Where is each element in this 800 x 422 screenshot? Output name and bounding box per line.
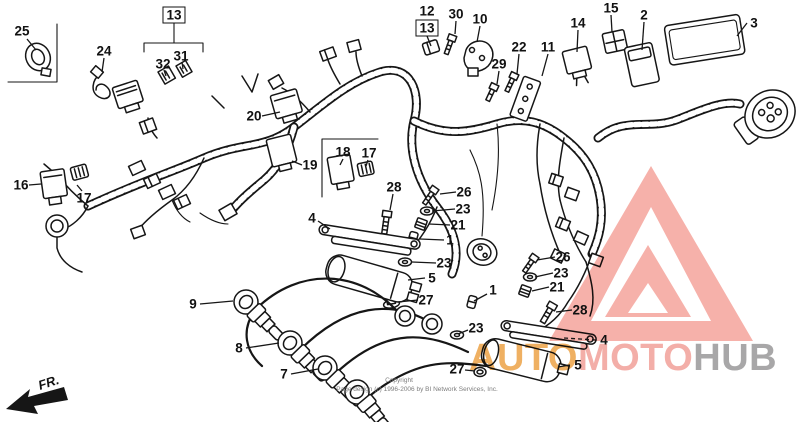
part-label-11: 11 — [541, 40, 555, 55]
part-label-18: 18 — [335, 145, 350, 160]
part-label-23: 23 — [436, 256, 451, 271]
part-label-25: 25 — [14, 24, 29, 39]
part-label-30: 30 — [448, 7, 463, 22]
part-label-28: 28 — [572, 303, 587, 318]
part-label-9: 9 — [189, 297, 197, 312]
parts-diagram-page: FR. AUTOMOTOHUB 252413323120121330102229… — [0, 0, 800, 422]
part-label-2: 2 — [640, 8, 648, 23]
part-label-23: 23 — [553, 266, 568, 281]
part-label-15: 15 — [603, 1, 618, 16]
part-label-23: 23 — [455, 202, 470, 217]
copyright-line1: Copyright — [385, 377, 413, 384]
part-label-14: 14 — [570, 16, 585, 31]
part-label-31: 31 — [173, 49, 188, 64]
part-label-21: 21 — [450, 218, 465, 233]
part-label-22: 22 — [511, 40, 526, 55]
part-label-16: 16 — [13, 178, 28, 193]
part-label-20: 20 — [246, 109, 261, 124]
part-label-7: 7 — [280, 367, 288, 382]
part-label-3: 3 — [750, 16, 758, 31]
part-label-27: 27 — [418, 293, 433, 308]
copyright-line2: Page design (c) 1996-2006 by BI Network … — [336, 386, 498, 393]
part-label-26: 26 — [555, 250, 570, 265]
part-label-13: 13 — [415, 20, 438, 37]
part-label-19: 19 — [302, 158, 317, 173]
part-label-32: 32 — [155, 57, 170, 72]
part-label-5: 5 — [428, 271, 436, 286]
part-label-4: 4 — [308, 211, 316, 226]
part-label-17: 17 — [76, 191, 91, 206]
part-label-1: 1 — [446, 233, 454, 248]
part-label-24: 24 — [96, 44, 111, 59]
callout-labels: 2524133231201213301022291114152316171918… — [0, 0, 800, 422]
part-label-26: 26 — [456, 185, 471, 200]
part-label-17: 17 — [361, 146, 376, 161]
part-label-12: 12 — [419, 4, 434, 19]
part-label-27: 27 — [449, 362, 464, 377]
part-label-8: 8 — [235, 341, 243, 356]
part-label-28: 28 — [386, 180, 401, 195]
part-label-5: 5 — [574, 358, 582, 373]
part-label-1: 1 — [489, 283, 497, 298]
part-label-13: 13 — [162, 7, 185, 24]
part-label-4: 4 — [600, 333, 608, 348]
part-label-21: 21 — [549, 280, 564, 295]
part-label-10: 10 — [472, 12, 487, 27]
part-label-29: 29 — [491, 57, 506, 72]
part-label-23: 23 — [468, 321, 483, 336]
